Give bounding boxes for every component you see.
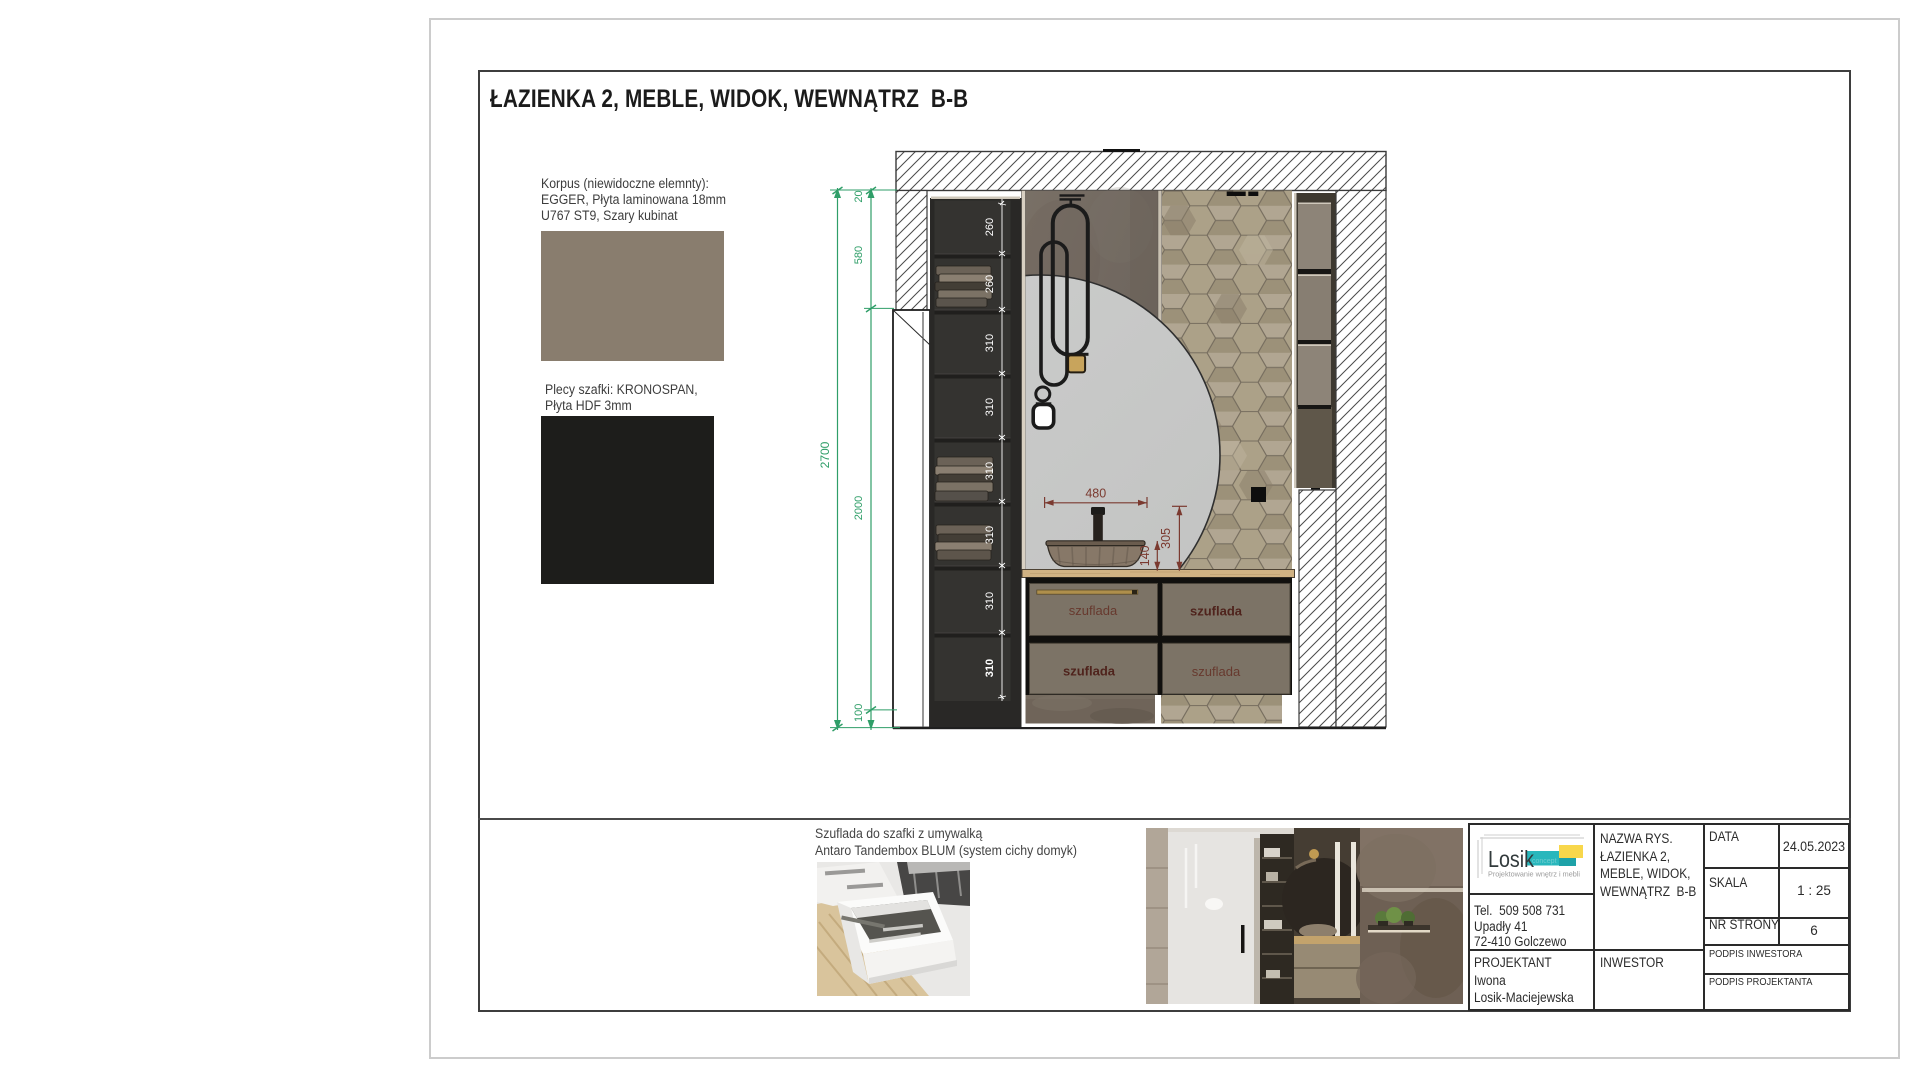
svg-text:140: 140 (1138, 545, 1152, 566)
svg-text:310: 310 (984, 659, 996, 677)
svg-text:szuflada: szuflada (1192, 664, 1241, 679)
svg-text:100: 100 (853, 704, 865, 722)
svg-text:szuflada: szuflada (1063, 664, 1116, 679)
svg-text:2000: 2000 (853, 496, 865, 520)
svg-text:310: 310 (984, 398, 996, 416)
svg-text:305: 305 (1159, 528, 1173, 549)
svg-text:Losik: Losik (1488, 846, 1534, 872)
svg-text:2700: 2700 (820, 441, 832, 468)
svg-text:szuflada: szuflada (1190, 604, 1243, 619)
svg-text:szuflada: szuflada (1069, 603, 1118, 618)
svg-text:concept: concept (1532, 858, 1557, 865)
svg-text:480: 480 (1085, 487, 1106, 501)
svg-text:310: 310 (984, 592, 996, 610)
svg-text:260: 260 (984, 218, 996, 236)
svg-text:20: 20 (853, 190, 865, 202)
svg-text:310: 310 (984, 334, 996, 352)
svg-text:Projektowanie wnętrz i mebli: Projektowanie wnętrz i mebli (1488, 870, 1580, 879)
svg-text:310: 310 (984, 462, 996, 480)
svg-text:310: 310 (984, 526, 996, 544)
svg-text:260: 260 (984, 275, 996, 293)
svg-text:580: 580 (853, 246, 865, 264)
